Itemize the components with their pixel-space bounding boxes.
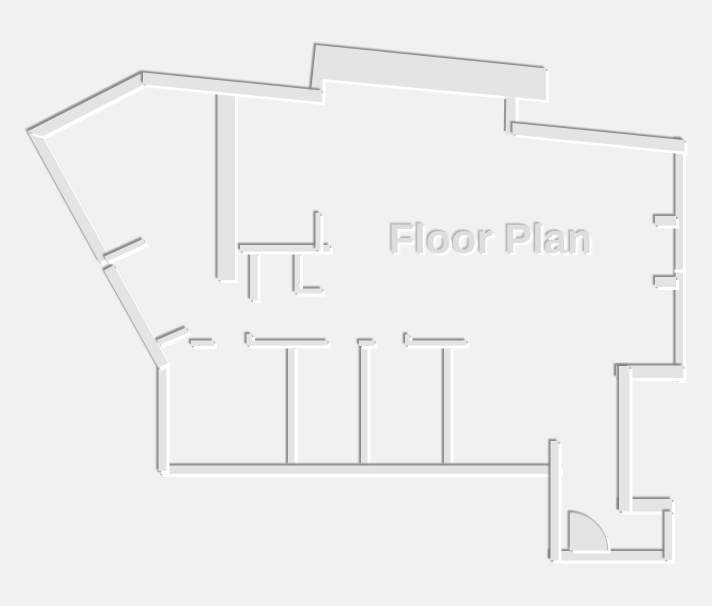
svg-text:Floor Plan: Floor Plan — [389, 216, 592, 262]
